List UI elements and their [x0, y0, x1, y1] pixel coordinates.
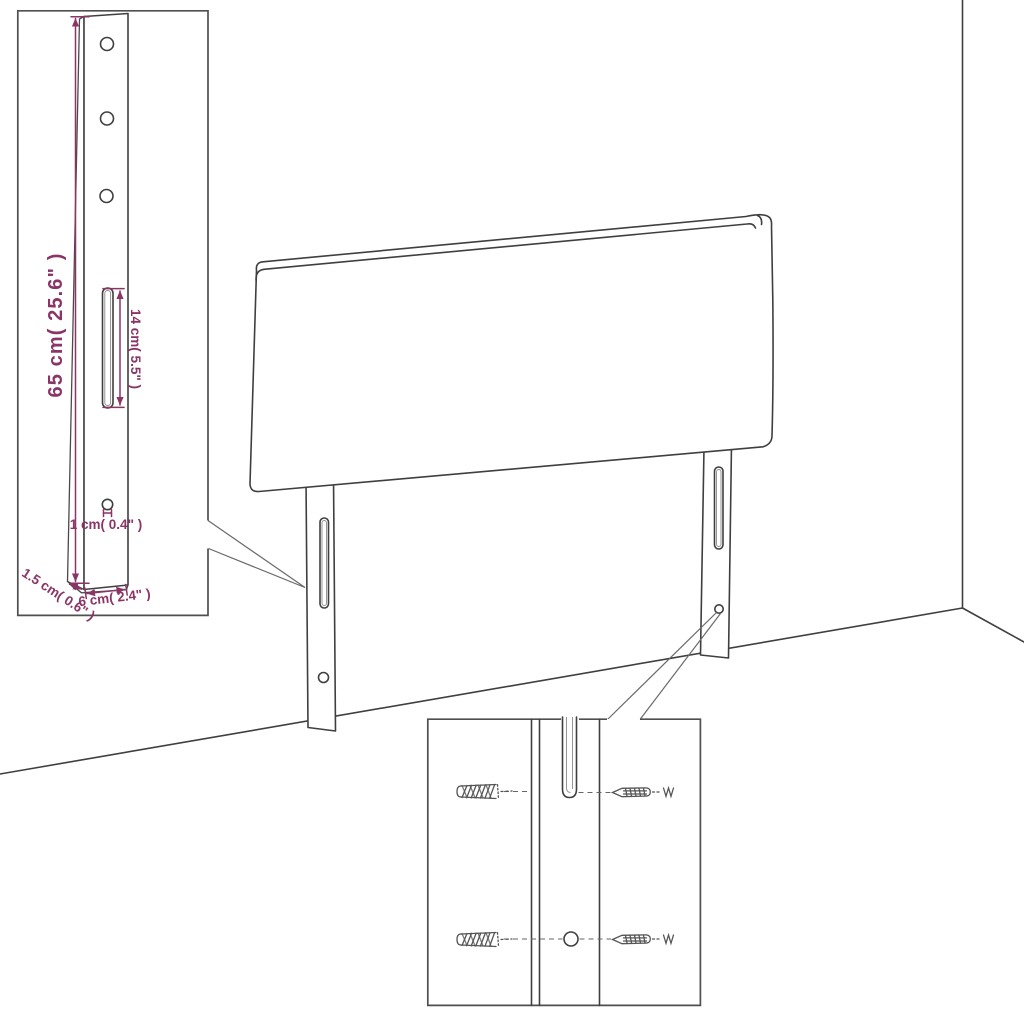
callout-lines-leg-detail	[208, 521, 305, 588]
left-leg	[306, 477, 336, 731]
product-dimension-diagram: 65 cm( 25.6" ) 14 cm( 5.5" ) 1 cm( 0.4" …	[0, 0, 1024, 1024]
right-leg	[701, 445, 732, 659]
mounting-detail-inset	[427, 717, 701, 1006]
leg-detail-inset: 65 cm( 25.6" ) 14 cm( 5.5" ) 1 cm( 0.4" …	[17, 10, 208, 623]
dim-slot-label: 14 cm( 5.5" )	[128, 309, 143, 389]
headboard-panel	[250, 215, 773, 492]
dim-hole-label: 1 cm( 0.4" )	[70, 517, 142, 532]
dim-height-label: 65 cm( 25.6" )	[45, 253, 67, 398]
diagram-svg: 65 cm( 25.6" ) 14 cm( 5.5" ) 1 cm( 0.4" …	[0, 0, 1024, 1024]
floor-line-right	[963, 608, 1024, 642]
